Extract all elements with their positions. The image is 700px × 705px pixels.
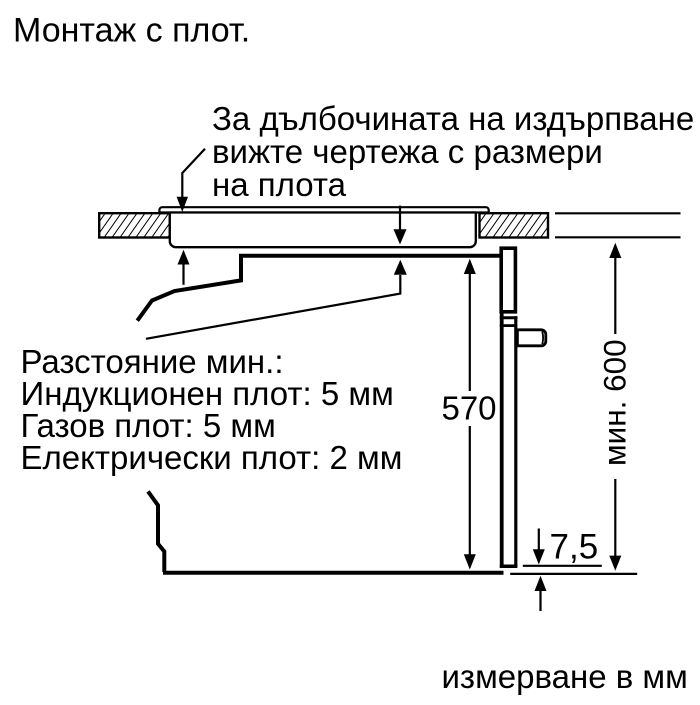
svg-text:мин. 600: мин. 600 xyxy=(596,339,632,466)
svg-text:570: 570 xyxy=(441,390,496,427)
svg-text:Електрически плот: 2 мм: Електрически плот: 2 мм xyxy=(21,439,403,476)
svg-text:Монтаж с плот.: Монтаж с плот. xyxy=(13,11,250,49)
svg-text:7,5: 7,5 xyxy=(550,528,599,567)
svg-text:За дълбочината на издърпване: За дълбочината на издърпване xyxy=(212,100,694,137)
svg-text:вижте чертежа с размери: вижте чертежа с размери xyxy=(212,133,603,170)
svg-text:измерване в мм: измерване в мм xyxy=(442,658,688,695)
svg-text:на плота: на плота xyxy=(212,166,347,203)
